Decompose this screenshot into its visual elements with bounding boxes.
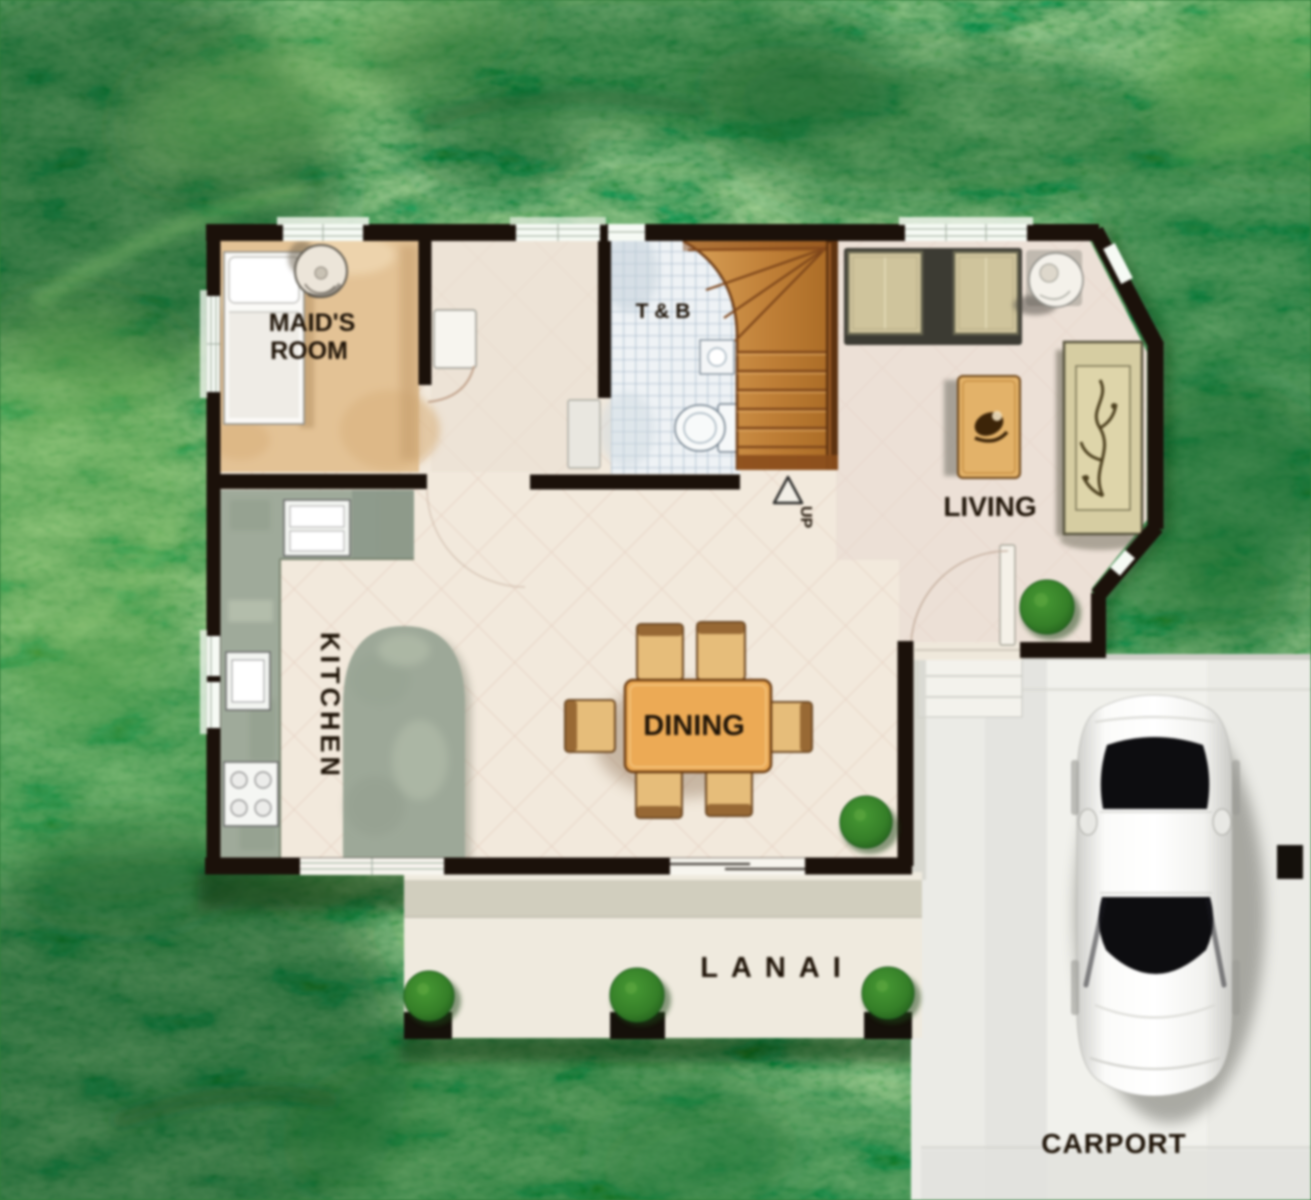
svg-text:UP: UP: [797, 506, 814, 529]
svg-text:CARPORT: CARPORT: [1041, 1128, 1186, 1159]
svg-text:T & B: T & B: [636, 300, 691, 323]
svg-text:MAID'S: MAID'S: [269, 309, 356, 337]
svg-text:LANAI: LANAI: [700, 952, 854, 984]
svg-text:KITCHEN: KITCHEN: [315, 632, 345, 780]
svg-text:ROOM: ROOM: [270, 337, 348, 365]
svg-text:DINING: DINING: [643, 710, 745, 742]
svg-text:LIVING: LIVING: [943, 491, 1036, 522]
